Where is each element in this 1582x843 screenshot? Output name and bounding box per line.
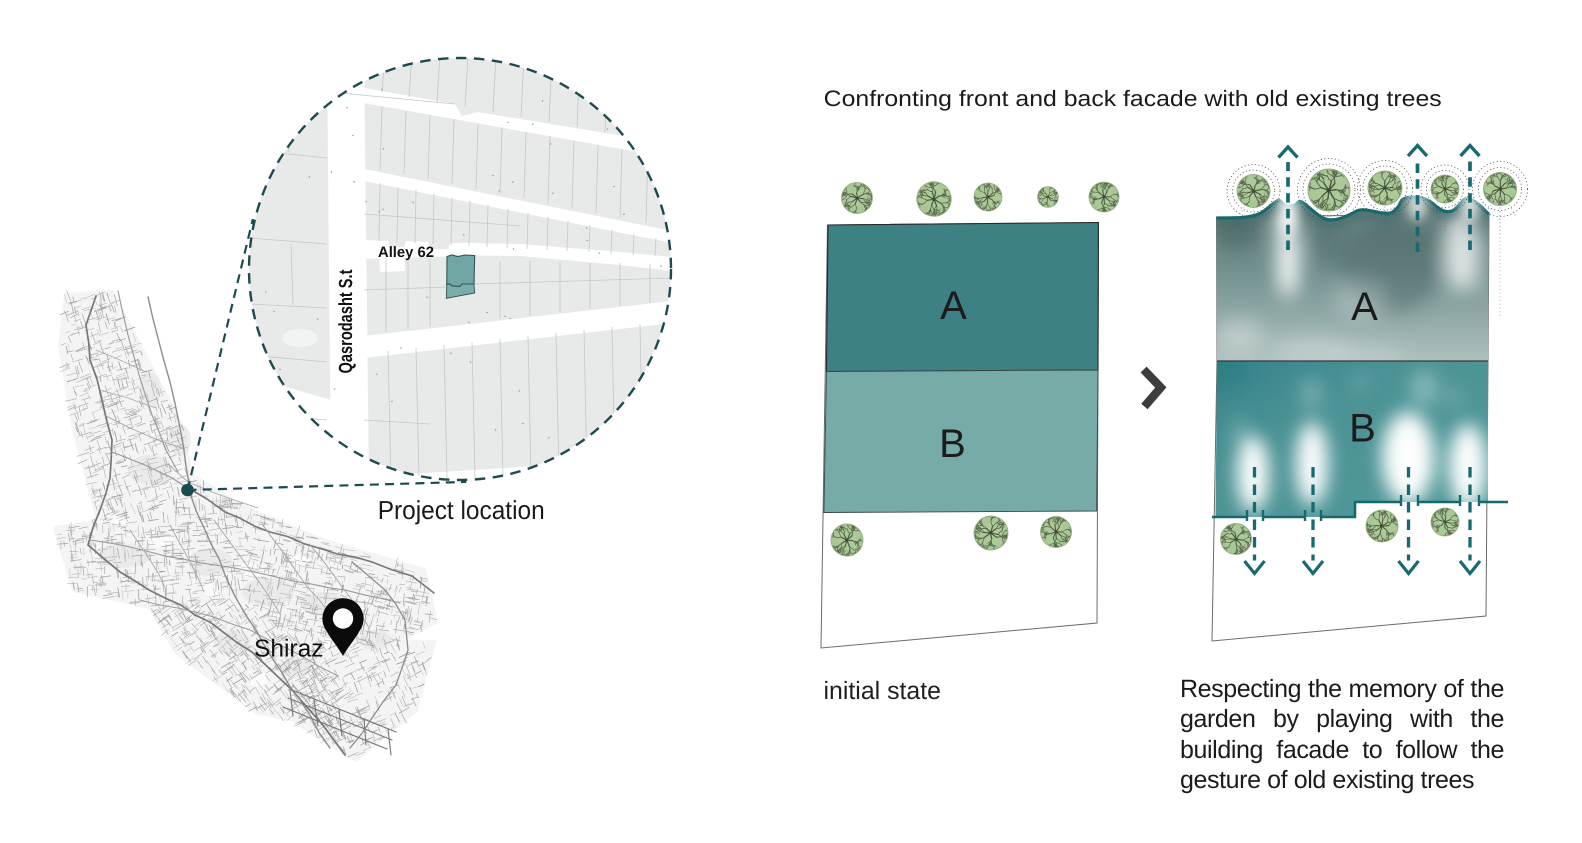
svg-text:Shiraz: Shiraz [254, 635, 324, 662]
svg-text:Qasrodasht S.t: Qasrodasht S.t [336, 269, 357, 374]
svg-text:B: B [939, 422, 966, 466]
svg-text:Alley 62: Alley 62 [378, 244, 434, 261]
svg-text:initial state: initial state [824, 677, 942, 705]
svg-text:B: B [1349, 407, 1376, 451]
svg-text:A: A [940, 284, 967, 328]
svg-text:Project location: Project location [378, 495, 545, 525]
svg-text:Confronting front and back fac: Confronting front and back facade with o… [824, 86, 1442, 111]
svg-text:A: A [1351, 285, 1378, 329]
